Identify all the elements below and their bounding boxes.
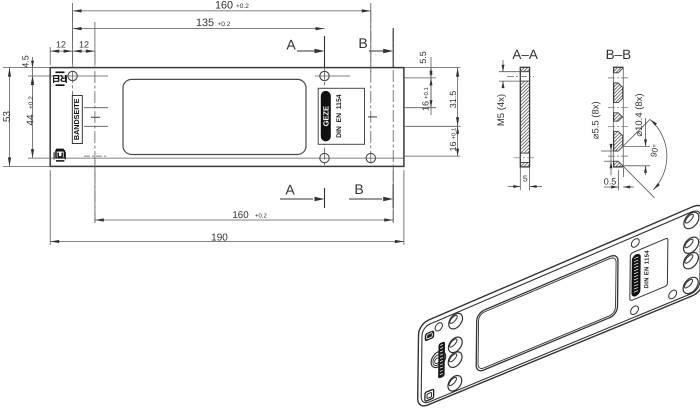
svg-text:0.5: 0.5 <box>604 177 617 187</box>
svg-text:GEZE: GEZE <box>322 106 331 126</box>
svg-text:A–A: A–A <box>512 47 538 62</box>
svg-text:DIN EN 1154: DIN EN 1154 <box>643 250 650 289</box>
svg-text:12: 12 <box>79 40 89 50</box>
svg-text:RE: RE <box>53 72 67 83</box>
svg-text:190: 190 <box>211 232 228 243</box>
svg-text:⌀5.5 (8x): ⌀5.5 (8x) <box>591 101 602 139</box>
svg-text:5: 5 <box>523 174 528 184</box>
svg-text:5.5: 5.5 <box>418 51 428 64</box>
svg-text:160: 160 <box>215 0 233 12</box>
svg-text:53: 53 <box>2 111 13 123</box>
svg-text:+0.2: +0.2 <box>28 96 35 109</box>
svg-text:160: 160 <box>232 210 249 221</box>
svg-text:+0.2: +0.2 <box>236 3 249 10</box>
svg-text:+0.1: +0.1 <box>451 127 458 140</box>
svg-text:16: 16 <box>421 101 431 111</box>
svg-text:+0.1: +0.1 <box>423 86 430 99</box>
svg-text:BANDSEITE: BANDSEITE <box>72 98 81 140</box>
svg-text:A: A <box>285 182 295 198</box>
svg-text:+0.2: +0.2 <box>218 21 231 28</box>
svg-text:DIN EN 1154: DIN EN 1154 <box>336 94 343 138</box>
svg-text:+0.2: +0.2 <box>255 212 268 219</box>
svg-text:B: B <box>354 181 363 197</box>
svg-text:31.5: 31.5 <box>448 91 458 109</box>
svg-text:M5 (4x): M5 (4x) <box>496 94 507 126</box>
svg-text:16: 16 <box>448 141 458 151</box>
svg-text:4.5: 4.5 <box>21 55 31 68</box>
svg-text:B: B <box>358 35 367 51</box>
svg-text:135: 135 <box>196 17 214 29</box>
svg-text:44: 44 <box>26 114 37 126</box>
svg-text:B–B: B–B <box>606 47 632 62</box>
svg-text:12: 12 <box>56 40 66 50</box>
svg-text:A: A <box>286 37 296 53</box>
